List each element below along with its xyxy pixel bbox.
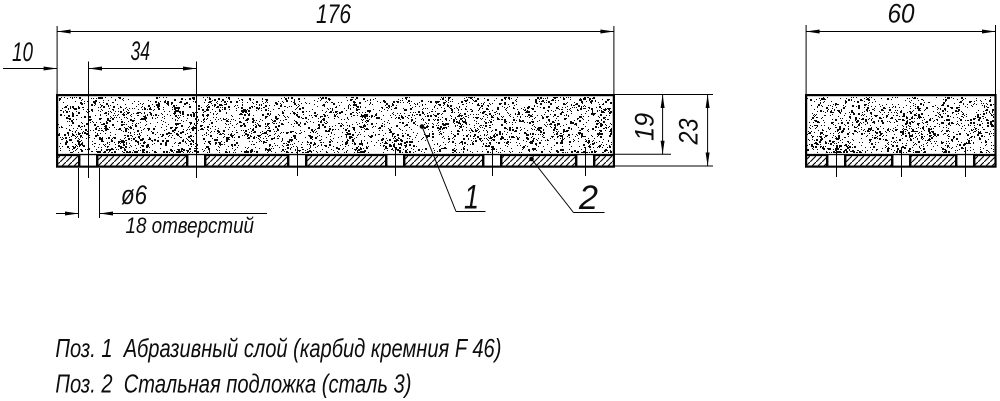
svg-text:60: 60 (888, 0, 915, 29)
svg-text:Поз. 1 Абразивный слой (карби: Поз. 1 Абразивный слой (карбид кремния F… (55, 333, 501, 363)
svg-text:23: 23 (674, 119, 704, 146)
svg-text:176: 176 (316, 0, 352, 29)
svg-text:2: 2 (578, 179, 598, 217)
svg-text:19: 19 (630, 113, 660, 141)
svg-text:Поз. 2 Стальная подложка (ста: Поз. 2 Стальная подложка (сталь 3) (55, 369, 411, 399)
svg-text:10: 10 (12, 37, 33, 67)
svg-text:ø6: ø6 (121, 180, 148, 210)
svg-text:18 отверстий: 18 отверстий (126, 213, 255, 238)
svg-text:1: 1 (464, 179, 479, 217)
svg-text:34: 34 (131, 36, 151, 66)
